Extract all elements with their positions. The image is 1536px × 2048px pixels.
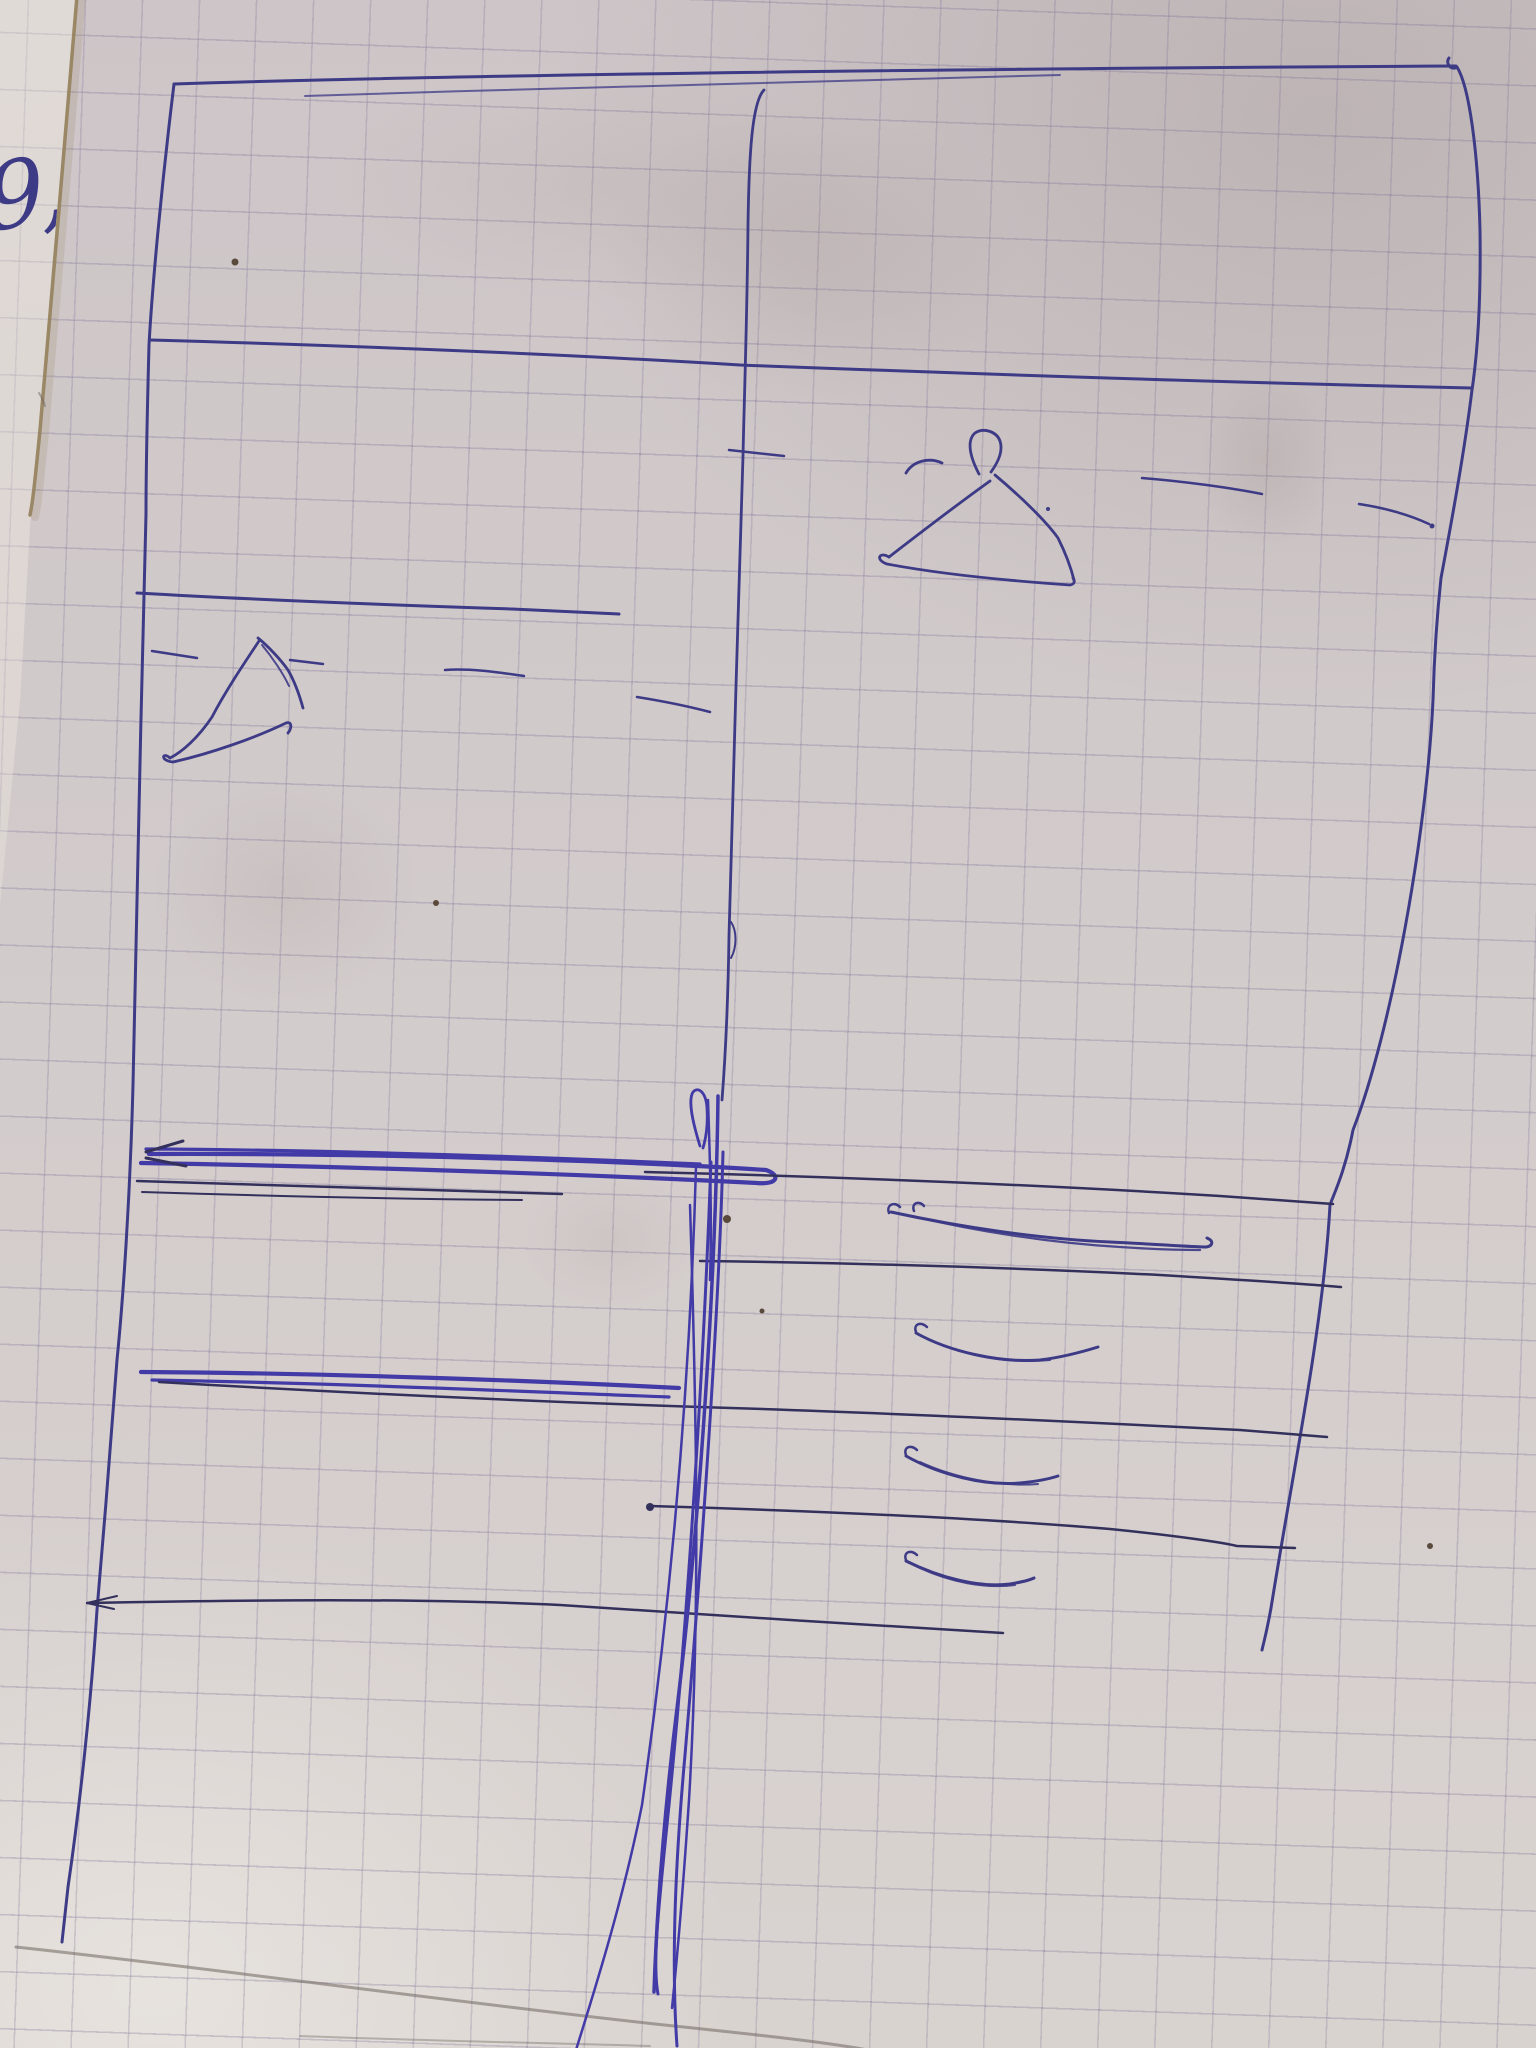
drawer-handle-2-hook xyxy=(915,1324,927,1332)
wardrobe-left-edge xyxy=(62,84,174,1942)
drawer-top-line-right xyxy=(645,1172,1333,1204)
hanging-rail-full-width xyxy=(151,340,1471,388)
right-hanger-hook xyxy=(970,430,1001,474)
left-rail-dash-2 xyxy=(445,670,524,676)
drawer-handle-4-hook xyxy=(905,1552,917,1560)
photographed-sketch: 9, xyxy=(0,0,1536,2048)
drawer-handle-3-main xyxy=(906,1456,1058,1483)
right-hanger-right-shoulder xyxy=(995,475,1074,580)
bottom-faint-curve-2 xyxy=(300,2036,650,2046)
right-rail-dash-2 xyxy=(1359,504,1429,524)
left-rail-dash-1 xyxy=(290,660,323,664)
left-shelf-1-dark-a xyxy=(137,1181,562,1194)
drawer-line-2-right xyxy=(700,1261,1341,1287)
drawer-line-4-right xyxy=(650,1506,1295,1548)
divider-branch-hook xyxy=(731,922,736,958)
paper-speck-4 xyxy=(760,1309,765,1314)
paper-speck-2 xyxy=(723,1215,731,1223)
drawer-handle-2-main xyxy=(916,1333,1098,1360)
left-rail-dash-3 xyxy=(637,697,710,712)
paper-speck-3 xyxy=(1427,1543,1433,1549)
paper-speck-5 xyxy=(433,900,439,906)
drawer-handle-4-main xyxy=(906,1561,1034,1585)
left-edge-tick-mark xyxy=(152,651,197,658)
drawer-handle-2-second xyxy=(930,1340,1050,1361)
pen-knot-drawer-line-4 xyxy=(646,1503,654,1511)
left-section-rail xyxy=(137,593,619,614)
drawer-line-3-long-dark xyxy=(159,1382,1327,1437)
bottom-faint-curve xyxy=(16,1947,868,2048)
drawer-handle-3-hook xyxy=(905,1447,917,1455)
sheet-edge-shadow xyxy=(35,0,82,517)
right-hanger-bottom-bar xyxy=(880,555,1075,585)
divider-scribble-loop xyxy=(691,1090,707,1148)
left-hanger-bottom-bar xyxy=(164,723,291,762)
right-rail-dash-1 xyxy=(1142,478,1262,494)
wardrobe-center-divider xyxy=(722,90,764,1100)
divider-tick-mark xyxy=(729,450,784,456)
wardrobe-right-edge xyxy=(1262,58,1480,1650)
wardrobe-sketch-ink xyxy=(0,0,1536,2048)
sheet-edge-line xyxy=(30,0,77,515)
bottom-long-line xyxy=(87,1600,1003,1633)
left-shelf-1-dark-b xyxy=(142,1192,522,1200)
left-shelf-1-heavy-loop xyxy=(141,1154,775,1183)
right-hanger-left-shoulder xyxy=(889,481,990,557)
drawer-handle-1-hook-b xyxy=(913,1203,924,1211)
right-hanger-left-arc xyxy=(906,460,942,473)
pen-dot-dash-end xyxy=(1430,524,1435,529)
drawer-handle-3-second xyxy=(920,1462,1038,1485)
paper-speck-1 xyxy=(232,259,239,266)
pen-dot-near-hanger xyxy=(1046,507,1050,511)
